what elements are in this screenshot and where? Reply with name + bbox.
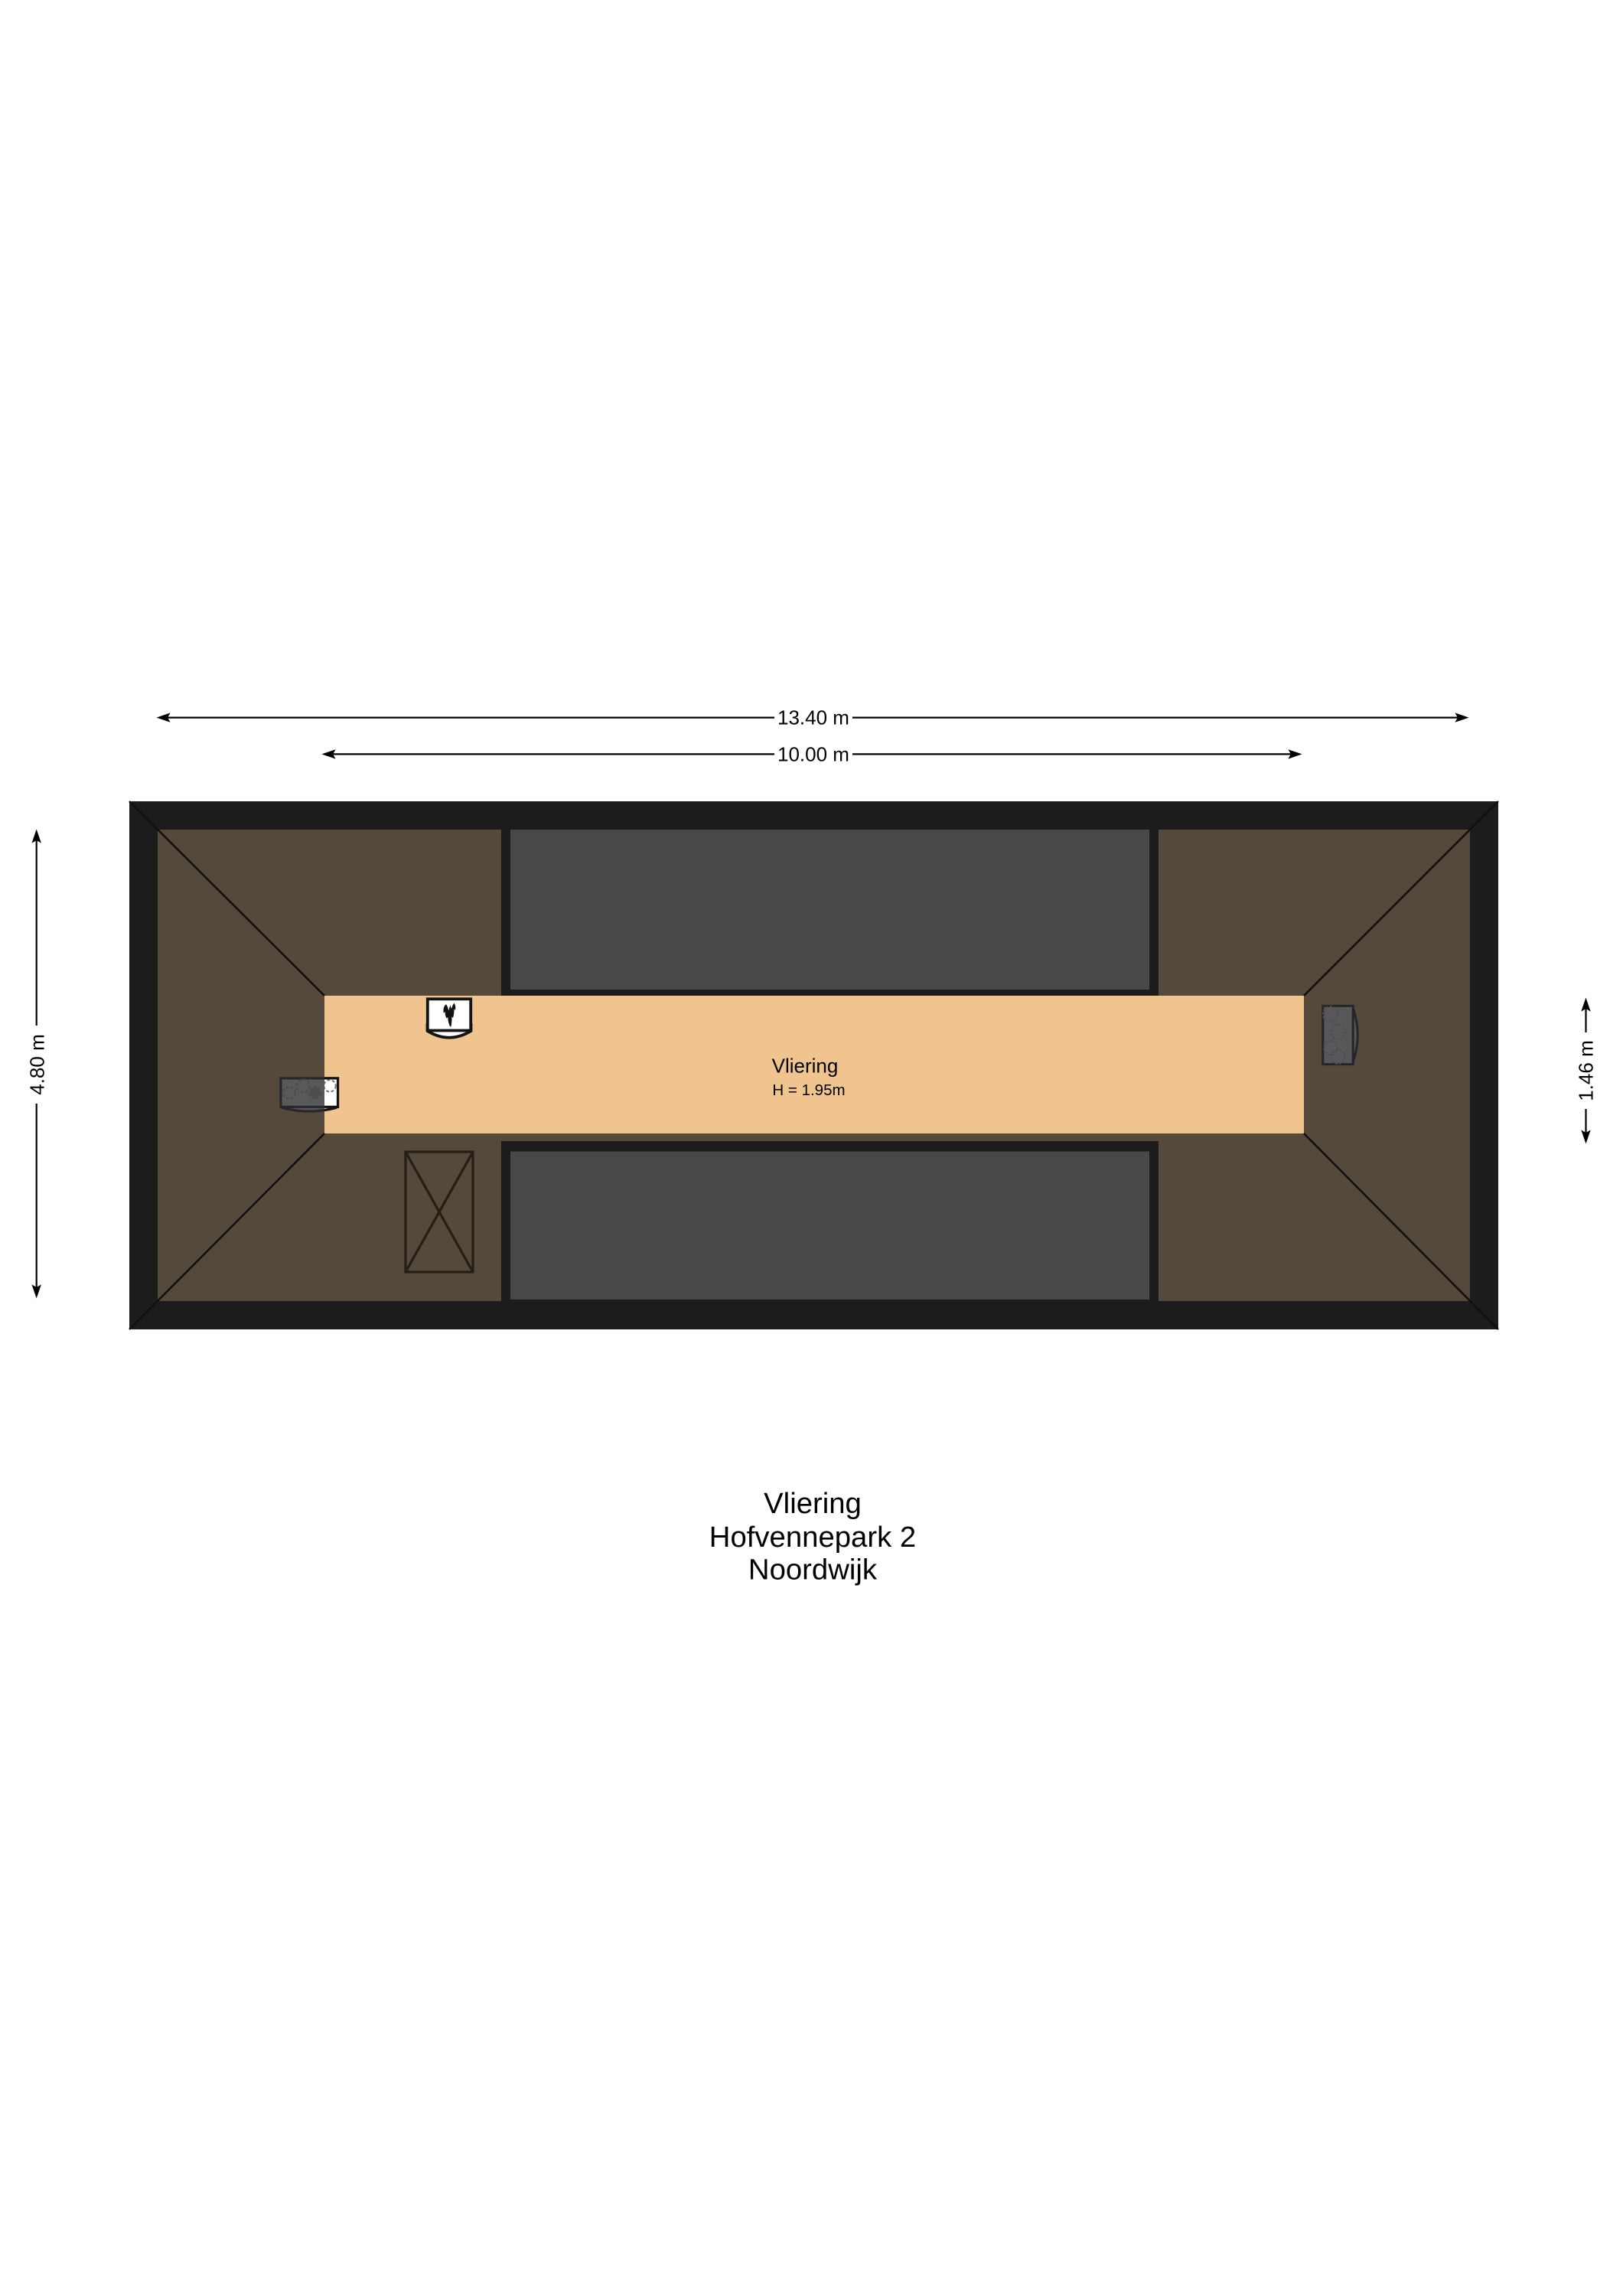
svg-text:1.46 m: 1.46 m bbox=[1575, 1040, 1598, 1101]
svg-text:Vliering: Vliering bbox=[772, 1055, 839, 1078]
svg-text:Vliering: Vliering bbox=[764, 1487, 862, 1520]
svg-text:Noordwijk: Noordwijk bbox=[748, 1554, 878, 1587]
svg-text:Hofvennepark 2: Hofvennepark 2 bbox=[709, 1521, 916, 1554]
svg-text:13.40 m: 13.40 m bbox=[777, 706, 849, 729]
svg-text:4.80 m: 4.80 m bbox=[26, 1034, 49, 1095]
svg-text:H = 1.95m: H = 1.95m bbox=[772, 1081, 845, 1099]
svg-text:10.00 m: 10.00 m bbox=[777, 742, 849, 765]
